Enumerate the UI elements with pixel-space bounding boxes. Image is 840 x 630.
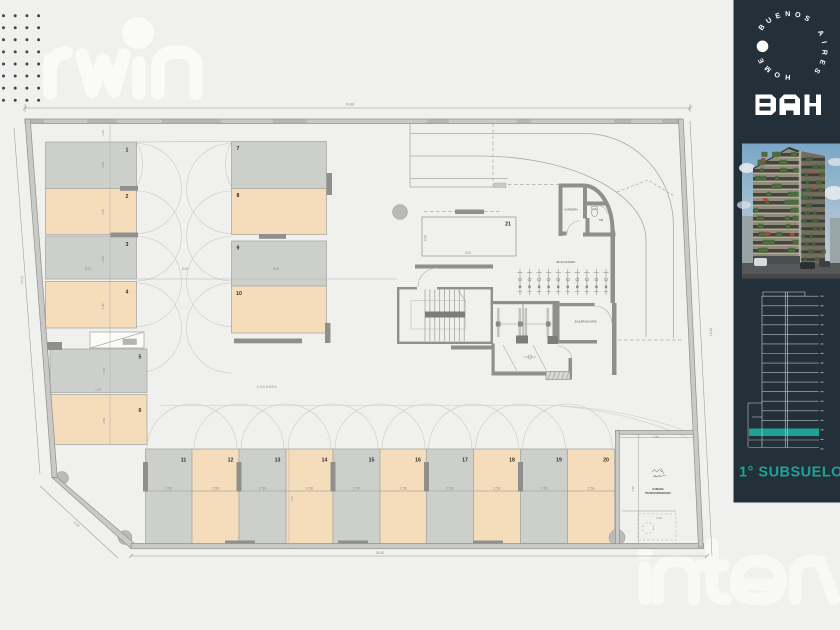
svg-text:18: 18 bbox=[509, 458, 515, 464]
svg-text:5.00: 5.00 bbox=[182, 267, 188, 271]
svg-text:4.50: 4.50 bbox=[653, 435, 659, 439]
svg-text:5.00: 5.00 bbox=[465, 251, 471, 255]
svg-text:2.50: 2.50 bbox=[101, 162, 105, 168]
svg-text:1: 1 bbox=[126, 148, 129, 154]
svg-text:GUARDERIA: GUARDERIA bbox=[564, 209, 578, 212]
svg-text:15: 15 bbox=[369, 458, 375, 464]
svg-text:9: 9 bbox=[237, 246, 240, 252]
svg-text:1.05: 1.05 bbox=[101, 130, 105, 136]
svg-text:BAULERAS/GUARD.: BAULERAS/GUARD. bbox=[575, 321, 598, 324]
svg-text:1.00: 1.00 bbox=[95, 388, 101, 392]
svg-text:TOIL: TOIL bbox=[598, 220, 604, 222]
svg-text:2.50: 2.50 bbox=[587, 487, 594, 491]
svg-text:N: N bbox=[785, 9, 791, 18]
svg-text:2.50: 2.50 bbox=[306, 487, 313, 491]
svg-text:4.87: 4.87 bbox=[290, 496, 294, 502]
svg-text:12: 12 bbox=[228, 458, 234, 464]
svg-text:3.50: 3.50 bbox=[631, 486, 635, 492]
svg-text:20: 20 bbox=[603, 458, 609, 464]
svg-text:4.60: 4.60 bbox=[656, 516, 662, 520]
svg-text:14: 14 bbox=[322, 458, 328, 464]
svg-text:17: 17 bbox=[462, 458, 468, 464]
svg-text:5.00: 5.00 bbox=[273, 267, 279, 271]
svg-text:CAMARA: CAMARA bbox=[652, 487, 664, 491]
svg-text:2.50: 2.50 bbox=[165, 487, 172, 491]
svg-text:5: 5 bbox=[139, 355, 142, 361]
svg-text:2.50: 2.50 bbox=[353, 487, 360, 491]
svg-text:6: 6 bbox=[139, 408, 142, 414]
svg-text:BICICLETERO: BICICLETERO bbox=[557, 260, 576, 264]
svg-text:2: 2 bbox=[126, 194, 129, 200]
svg-text:2.50: 2.50 bbox=[446, 487, 453, 491]
svg-text:8: 8 bbox=[237, 193, 240, 199]
svg-text:14.10: 14.10 bbox=[20, 275, 25, 284]
svg-text:2.50: 2.50 bbox=[101, 303, 105, 309]
svg-text:1° SUBSUELO: 1° SUBSUELO bbox=[739, 465, 840, 481]
svg-text:7: 7 bbox=[237, 146, 240, 152]
svg-text:TRANSFORMADORA: TRANSFORMADORA bbox=[645, 491, 671, 495]
svg-text:11: 11 bbox=[181, 458, 187, 464]
svg-text:H: H bbox=[785, 73, 791, 82]
svg-text:19: 19 bbox=[556, 458, 562, 464]
svg-text:3: 3 bbox=[126, 242, 129, 248]
svg-text:2.50: 2.50 bbox=[101, 256, 105, 262]
svg-text:10: 10 bbox=[236, 291, 242, 297]
svg-text:34.50: 34.50 bbox=[376, 551, 385, 555]
svg-text:2.50: 2.50 bbox=[212, 487, 219, 491]
svg-text:2.50: 2.50 bbox=[493, 487, 500, 491]
svg-text:13.93: 13.93 bbox=[709, 327, 713, 336]
svg-text:2.50: 2.50 bbox=[400, 487, 407, 491]
svg-text:2.50: 2.50 bbox=[424, 235, 428, 241]
svg-text:2.50: 2.50 bbox=[101, 209, 105, 215]
svg-text:24.80: 24.80 bbox=[346, 103, 355, 107]
svg-text:5.00: 5.00 bbox=[85, 267, 91, 271]
svg-text:4: 4 bbox=[126, 290, 129, 296]
svg-text:COCHERA: COCHERA bbox=[257, 385, 278, 389]
svg-text:21: 21 bbox=[505, 222, 511, 228]
svg-text:2.50: 2.50 bbox=[102, 418, 106, 424]
svg-text:13: 13 bbox=[275, 458, 281, 464]
svg-text:16: 16 bbox=[415, 458, 421, 464]
svg-text:2.50: 2.50 bbox=[259, 487, 266, 491]
svg-text:2.50: 2.50 bbox=[102, 368, 106, 374]
svg-text:2.50: 2.50 bbox=[540, 487, 547, 491]
